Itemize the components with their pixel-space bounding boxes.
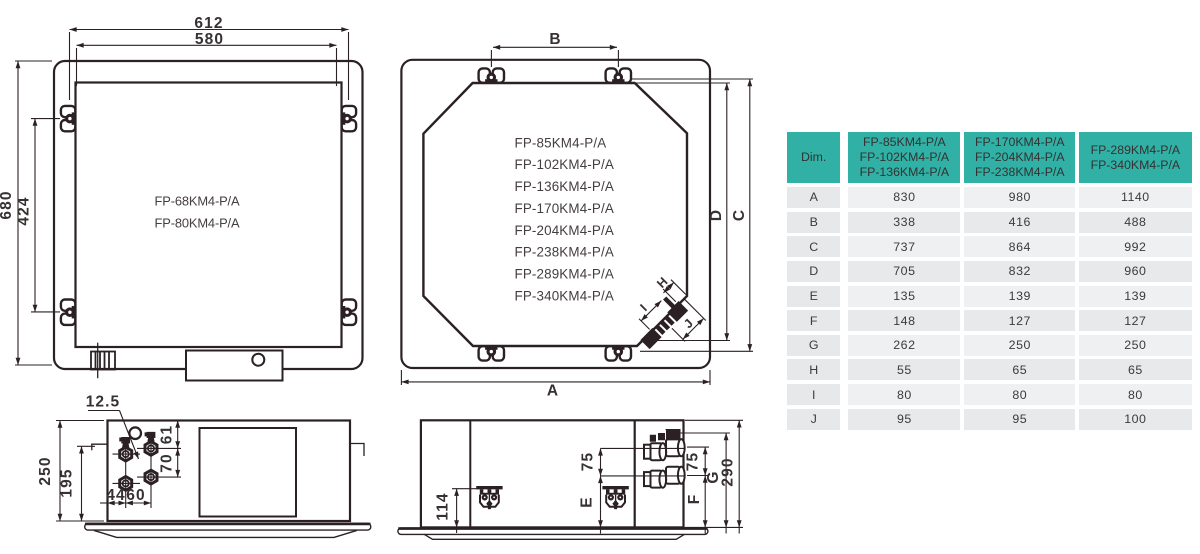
svg-text:424: 424 [16,196,33,225]
svg-text:C: C [731,209,748,221]
svg-text:FP-68KM4-P/A: FP-68KM4-P/A [155,193,240,208]
svg-text:B: B [549,31,561,48]
svg-text:E: E [579,496,596,507]
svg-text:A: A [547,383,559,400]
svg-text:F: F [686,494,703,505]
svg-text:FP-340KM4-P/A: FP-340KM4-P/A [515,288,614,303]
svg-text:290: 290 [720,457,737,486]
svg-text:75: 75 [580,452,597,471]
svg-text:12.5: 12.5 [86,394,121,411]
svg-text:680: 680 [0,190,15,219]
svg-text:75: 75 [684,452,701,471]
svg-text:580: 580 [195,31,224,48]
svg-text:D: D [708,209,725,221]
svg-text:I: I [637,302,649,314]
svg-text:612: 612 [194,15,223,32]
svg-text:44: 44 [106,487,125,504]
svg-text:FP-170KM4-P/A: FP-170KM4-P/A [515,201,614,216]
svg-text:FP-204KM4-P/A: FP-204KM4-P/A [515,223,614,238]
svg-text:FP-102KM4-P/A: FP-102KM4-P/A [515,157,614,172]
svg-text:250: 250 [37,456,54,485]
svg-text:70: 70 [159,453,176,472]
svg-text:FP-238KM4-P/A: FP-238KM4-P/A [515,245,614,260]
svg-text:61: 61 [159,425,176,444]
svg-text:60: 60 [126,487,145,504]
svg-text:FP-80KM4-P/A: FP-80KM4-P/A [155,216,240,231]
svg-text:FP-289KM4-P/A: FP-289KM4-P/A [515,267,614,282]
svg-text:FP-85KM4-P/A: FP-85KM4-P/A [515,135,607,150]
svg-text:FP-136KM4-P/A: FP-136KM4-P/A [515,179,614,194]
svg-text:114: 114 [435,492,452,520]
svg-text:195: 195 [59,468,76,497]
